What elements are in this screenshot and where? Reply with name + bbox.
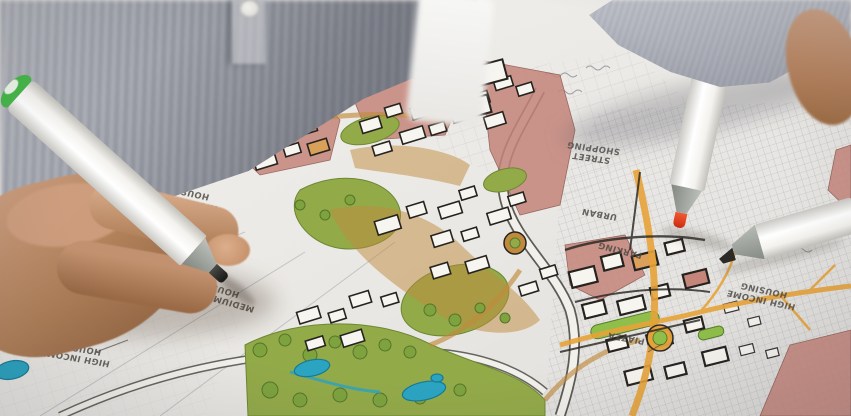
photo-stage: HIGH INCOME HOUSING MEDIUM INCOME HOUSIN… xyxy=(0,0,851,416)
red-marker-tip xyxy=(672,212,687,229)
background-highlight xyxy=(405,0,494,128)
shirt-button xyxy=(240,0,259,17)
